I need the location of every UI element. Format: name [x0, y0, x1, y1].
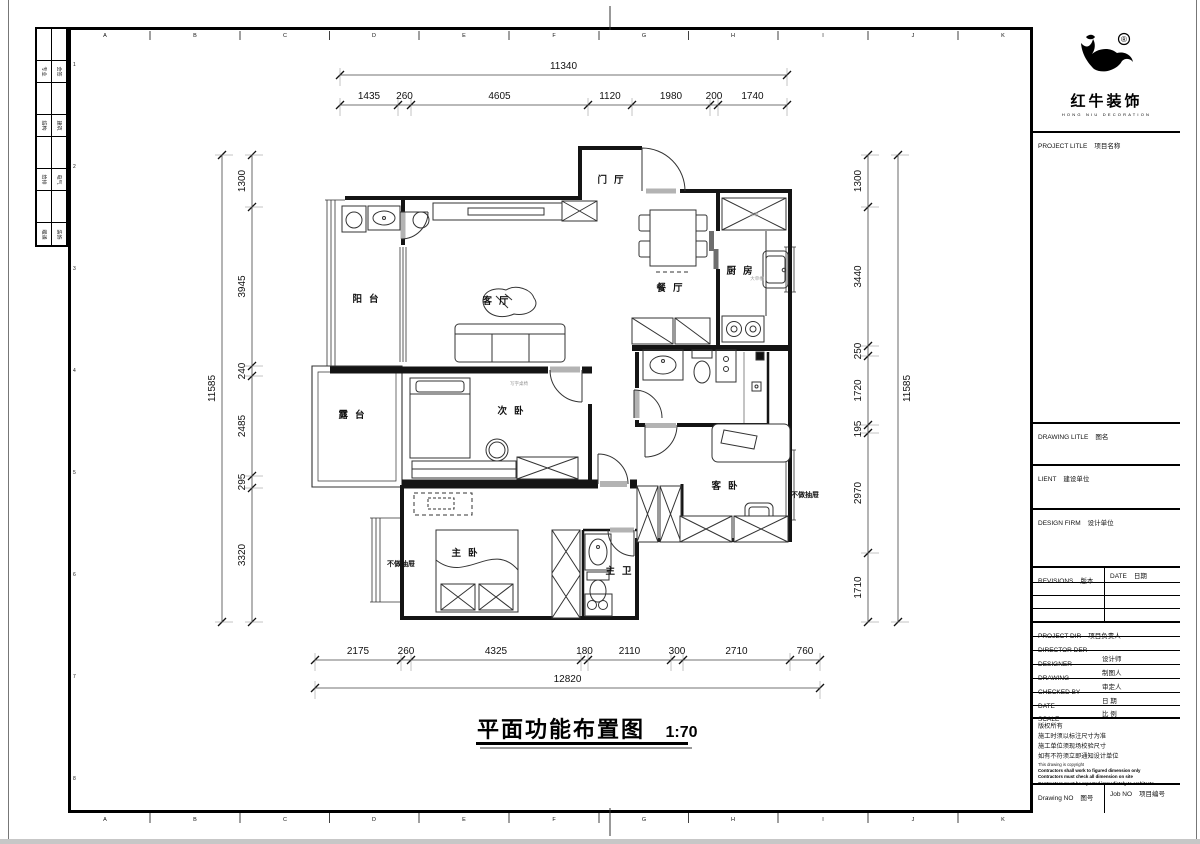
room-label-entry: 门厅: [597, 174, 630, 186]
dim-value: 195: [853, 420, 864, 437]
dim-value: 3945: [237, 275, 248, 298]
master-bed: [436, 530, 518, 612]
dim-value: 1300: [853, 169, 864, 192]
room-label-master: 主卧: [451, 547, 484, 559]
room-label-terrace: 露台: [338, 409, 371, 421]
room-label-dining: 餐厅: [655, 282, 689, 294]
room-label-guest: 客卧: [710, 480, 744, 492]
title-underline-shadow: [480, 747, 692, 749]
grid-letter-top: B: [193, 33, 197, 39]
dim-left-segments: 1300394524024852953320: [237, 151, 263, 626]
grid-letter-bottom: H: [731, 817, 735, 823]
grid-number-left: 3: [73, 266, 76, 272]
dining-set: [639, 210, 707, 272]
room-label-balcony: 阳台: [352, 293, 385, 305]
grid-letter-top: J: [912, 33, 915, 39]
field-design-firm: DESIGN FIRM设计单位: [1033, 510, 1180, 568]
cb-sink: [643, 350, 683, 380]
grid-letter-bottom: F: [552, 817, 556, 823]
grid-letter-bottom: A: [103, 817, 107, 823]
field-project-dir: PROJECT DIR项目负责人: [1033, 623, 1180, 637]
grid-letter-top: F: [552, 33, 556, 39]
dim-value: 1435: [358, 91, 381, 102]
sheet-title-text: 平面功能布置图: [477, 712, 645, 744]
field-drawing-title: DRAWING LITLE图名: [1033, 424, 1180, 466]
dim-left-total: 11585: [207, 151, 233, 626]
shower-head: [756, 352, 764, 360]
grid-number-left: 2: [73, 164, 76, 170]
dim-value: 11585: [902, 375, 913, 403]
svg-text:®: ®: [1121, 35, 1127, 44]
field-date: DATE日 期: [1033, 693, 1180, 706]
grid-reference-letters: AABBCCDDEEFFGGHHIIJJKK1122334455667788: [73, 31, 1037, 823]
grid-letter-bottom: I: [822, 817, 824, 823]
logo-section: ® 红牛装饰 HONG NIU DECORATION: [1033, 27, 1180, 133]
sheet-title-scale: 1:70: [665, 724, 697, 742]
grid-number-left: 4: [73, 368, 76, 374]
dim-value: 240: [237, 362, 248, 379]
grid-letter-top: C: [283, 33, 287, 39]
room-label-masterbath: 主卫: [605, 565, 638, 577]
grid-number-left: 6: [73, 572, 76, 578]
copyright-notes: 版权所有 施工时须以标注尺寸为准 施工单位须现场校验尺寸 如有不符须立即通知设计…: [1033, 719, 1180, 785]
dim-value: 1740: [741, 91, 764, 102]
brand-subtitle: HONG NIU DECORATION: [1033, 112, 1180, 117]
dim-top-total: 11340: [336, 61, 791, 86]
grid-letter-top: K: [1001, 33, 1005, 39]
stove: [722, 316, 764, 342]
note-no-drawer-left: 不做抽屉: [387, 559, 415, 568]
dim-value: 2710: [725, 646, 748, 657]
dim-value: 4325: [485, 646, 508, 657]
sofa: [455, 324, 565, 362]
annotation-fridge: 冰箱: [750, 211, 759, 218]
field-client: LIENT建设单位: [1033, 466, 1180, 510]
grid-letter-bottom: C: [283, 817, 287, 823]
revision-row-2: [1033, 596, 1180, 609]
field-checked-by: CHECKED BY审定人: [1033, 679, 1180, 693]
dim-bottom-total: 12820: [311, 674, 824, 699]
grid-letter-bottom: D: [372, 817, 376, 823]
annotation-kitchen-sink: 大单槽: [750, 275, 764, 282]
dim-value: 12820: [554, 674, 582, 685]
floor-drain: [752, 382, 761, 391]
dim-value: 1710: [853, 576, 864, 599]
field-scale: SCALE比 例: [1033, 706, 1180, 719]
furniture: [342, 198, 790, 618]
dim-value: 2485: [237, 414, 248, 437]
dim-value: 11585: [207, 375, 218, 403]
master-wardrobe: [552, 530, 580, 618]
room-label-bedroom2: 次卧: [497, 405, 530, 417]
dim-value: 3320: [237, 543, 248, 566]
grid-number-left: 1: [73, 62, 76, 68]
balcony-fixtures: [342, 206, 400, 232]
dim-value: 1980: [660, 91, 683, 102]
cb-toilet: [692, 350, 712, 358]
bed2: [410, 378, 470, 458]
dim-value: 1120: [599, 91, 621, 102]
dim-value: 295: [237, 473, 248, 490]
brand-name: 红牛装饰: [1033, 90, 1180, 111]
dim-right-segments: 13003440250172019529701710: [853, 151, 879, 626]
hall-closet: [637, 486, 681, 542]
dim-value: 3440: [853, 265, 864, 288]
grid-letter-top: A: [103, 33, 107, 39]
dim-value: 4605: [488, 91, 511, 102]
grid-letter-top: G: [642, 33, 646, 39]
dim-bottom-segments: 2175260432518021103002710760: [311, 646, 824, 671]
dim-value: 180: [576, 646, 593, 657]
dim-value: 2175: [347, 646, 370, 657]
drawing-sheet: { "sheet": { "grid_letters": ["A","B","C…: [0, 0, 1200, 844]
dim-value: 250: [853, 342, 864, 359]
field-project-title: PROJECT LITLE项目名称: [1033, 133, 1180, 424]
grid-letter-bottom: K: [1001, 817, 1005, 823]
dim-value: 11340: [550, 61, 578, 72]
annotation-desk: 写字桌椅: [510, 380, 528, 387]
bedroom2-furniture: [410, 378, 578, 479]
title-underline: [476, 742, 688, 745]
field-revisions-header: REVISIONS版本 DATE日期: [1033, 568, 1180, 583]
grid-letter-bottom: E: [462, 817, 466, 823]
field-designer: DESIGNER设计师: [1033, 651, 1180, 665]
bull-logo-icon: ®: [1072, 31, 1142, 83]
dim-value: 2110: [619, 646, 641, 657]
dim-value: 260: [396, 91, 413, 102]
dim-top-segments: 14352604605112019802001740: [336, 91, 791, 116]
grid-number-left: 7: [73, 674, 76, 680]
dim-value: 2970: [853, 481, 864, 504]
revision-row-3: [1033, 609, 1180, 623]
note-no-drawer-right: 不做抽屉: [791, 490, 819, 499]
dining-cabinets: [632, 318, 710, 344]
title-block: ® 红牛装饰 HONG NIU DECORATION PROJECT LITLE…: [1033, 27, 1180, 813]
grid-letter-top: E: [462, 33, 466, 39]
tv: [468, 208, 544, 215]
dim-value: 1720: [853, 379, 864, 402]
dim-value: 760: [797, 646, 814, 657]
dim-value: 1300: [237, 169, 248, 192]
field-director: DIRECTOR DER: [1033, 637, 1180, 651]
dim-value: 200: [706, 91, 723, 102]
grid-letter-top: D: [372, 33, 376, 39]
drawing-number-row: Drawing NO图号 Job NO项目编号: [1033, 785, 1180, 813]
grid-letter-bottom: J: [912, 817, 915, 823]
sheet-title: 平面功能布置图 1:70: [477, 712, 797, 744]
revision-row-1: [1033, 583, 1180, 596]
grid-letter-bottom: B: [193, 817, 197, 823]
grid-number-left: 5: [73, 470, 76, 476]
grid-letter-top: I: [822, 33, 824, 39]
dim-value: 260: [398, 646, 415, 657]
dim-right-total: 11585: [891, 151, 913, 626]
grid-letter-top: H: [731, 33, 735, 39]
dim-value: 300: [669, 646, 686, 657]
master-furniture: [414, 493, 580, 618]
field-drawing-by: DRAWING制图人: [1033, 665, 1180, 679]
room-label-living: 客厅: [481, 295, 515, 307]
grid-letter-bottom: G: [642, 817, 646, 823]
grid-number-left: 8: [73, 776, 76, 782]
